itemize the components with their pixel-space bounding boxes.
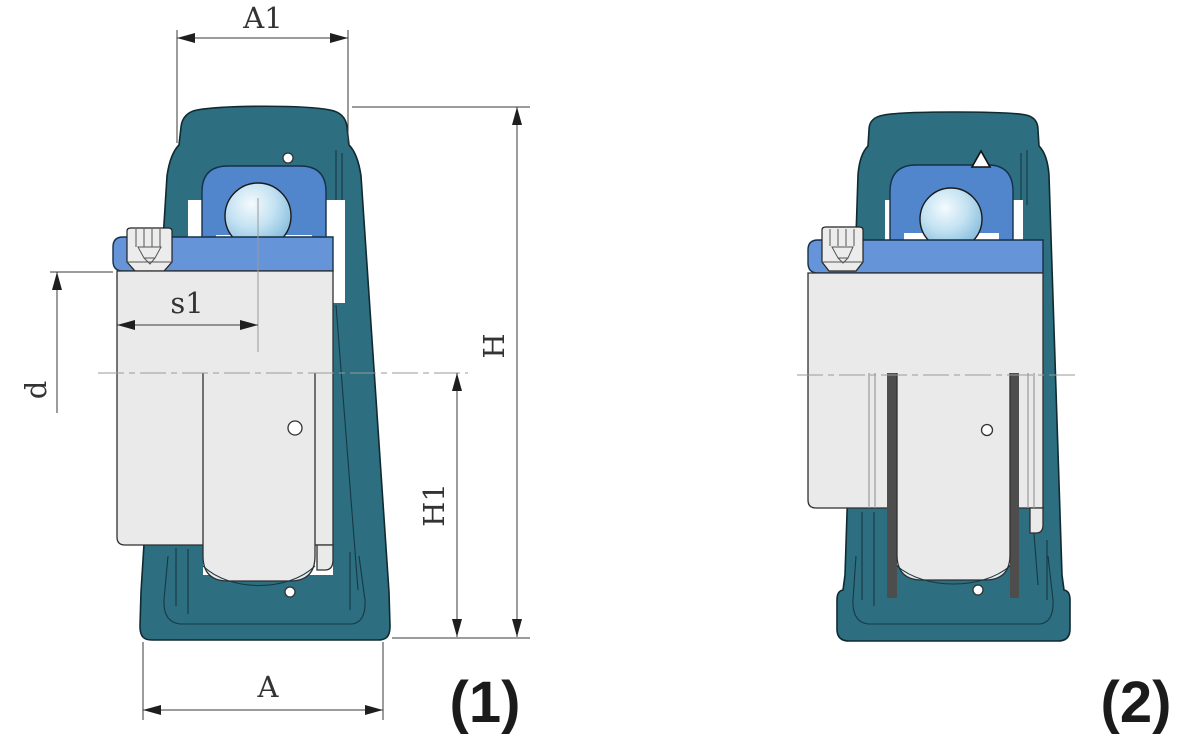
dimension-h-label: H (477, 333, 511, 358)
arrow-left-icon (143, 705, 161, 715)
figure-1-caption: (1) (450, 670, 521, 735)
arrow-up-icon (452, 373, 462, 391)
arrow-right-icon (365, 705, 383, 715)
set-screw (822, 227, 863, 271)
dimension-d: d (19, 272, 113, 413)
bore-shadow-left (887, 373, 897, 598)
dimension-s1-label: s1 (170, 286, 203, 320)
arrow-right-icon (330, 33, 348, 43)
bearing-units-drawing: A1 H H1 d s1 (0, 0, 1193, 742)
arrow-up-icon (512, 107, 522, 125)
arrow-up-icon (52, 272, 62, 290)
dimension-d-label: d (19, 381, 53, 400)
drawing-stage: A1 H H1 d s1 (0, 0, 1193, 742)
dimension-a: A (143, 642, 383, 720)
dimension-h1-label: H1 (417, 483, 451, 527)
arrow-left-icon (177, 33, 195, 43)
figure-1-drawing: A1 H H1 d s1 (19, 1, 530, 735)
dimension-h1: H1 (417, 373, 462, 637)
shaft-right-step (317, 545, 333, 570)
bore-shadow-right (1010, 373, 1019, 598)
base-cavity-notch (973, 585, 983, 595)
figure-2-drawing: (2) (797, 112, 1171, 735)
oil-hole (288, 421, 302, 435)
figure-2-caption: (2) (1101, 670, 1172, 735)
shaft-column (203, 373, 315, 581)
arrow-down-icon (512, 619, 522, 637)
shaft-right-step (1030, 508, 1043, 533)
dimension-a1-label: A1 (242, 1, 282, 35)
oil-hole (982, 425, 993, 436)
grease-hole (283, 153, 293, 163)
base-cavity-notch (285, 587, 295, 597)
dimension-a-label: A (257, 670, 280, 704)
set-screw (127, 228, 172, 271)
arrow-down-icon (452, 619, 462, 637)
shaft-column (897, 373, 1010, 580)
